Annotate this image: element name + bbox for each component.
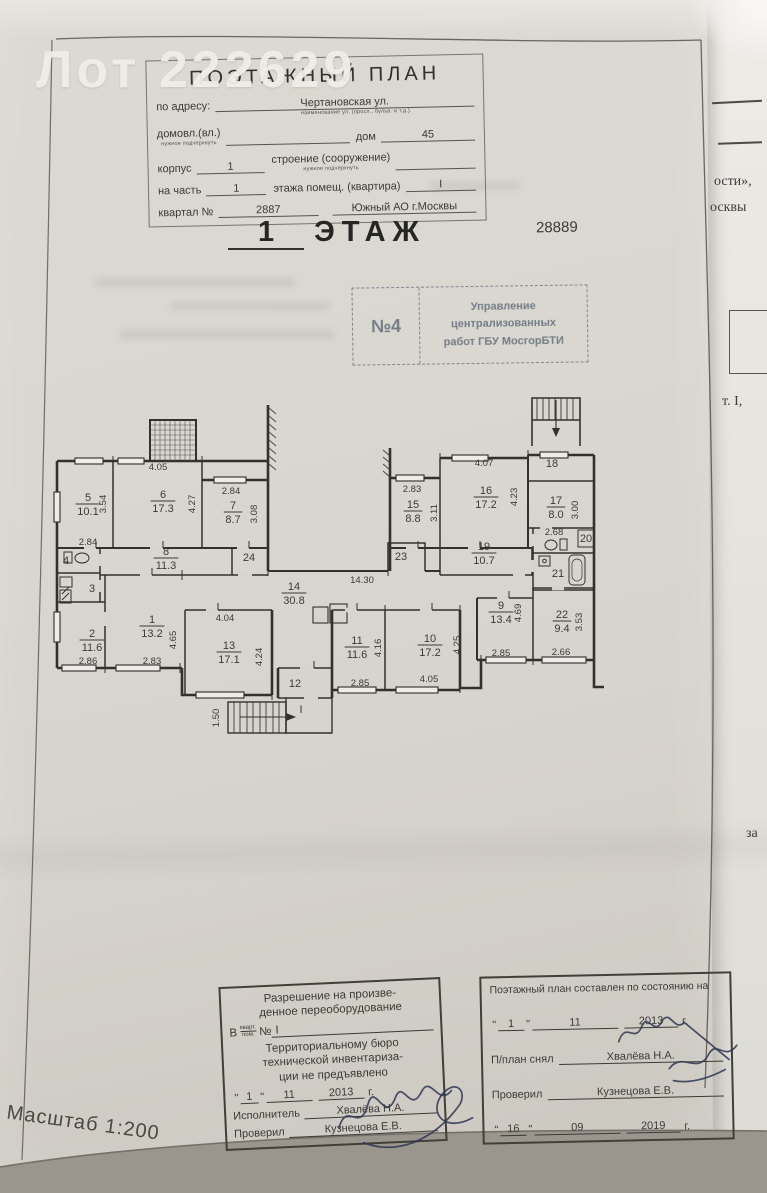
date-stamp-title: Поэтажный план составлен по состоянию на xyxy=(489,980,721,997)
date1-day: 1 xyxy=(498,1018,524,1032)
date2-day: 16 xyxy=(500,1123,526,1137)
bti-stamp-number: №4 xyxy=(352,288,420,365)
pom-label: пом. xyxy=(240,1032,256,1039)
floor-part-value: I xyxy=(405,178,476,192)
ownership-note: нужное подчеркнуть xyxy=(161,140,217,147)
ownership-row: домовл.(вл.) нужное подчеркнуть дом 45 xyxy=(157,122,475,148)
floor-title: 1ЭТАЖ xyxy=(228,216,426,249)
signature-flourish xyxy=(326,1060,480,1157)
floor-word: ЭТАЖ xyxy=(314,216,426,248)
korpus-value: 1 xyxy=(196,160,264,174)
part-value: 1 xyxy=(206,182,266,196)
num-label: № xyxy=(259,1026,272,1039)
checker-label: Проверил xyxy=(492,1088,543,1101)
house-value: 45 xyxy=(381,128,475,143)
perm-date-month: 11 xyxy=(266,1088,313,1103)
quote-mark: " xyxy=(526,1019,530,1031)
neighbor-text-fragment: т. I, xyxy=(722,394,742,410)
date1-month: 11 xyxy=(532,1016,618,1031)
quote-mark: " xyxy=(234,1092,238,1104)
quote-mark: " xyxy=(494,1124,498,1136)
address-label: по адресу: xyxy=(156,100,210,113)
neighbor-box-fragment xyxy=(729,310,767,374)
executor-label: Исполнитель xyxy=(233,1108,300,1123)
date2-year: 2019 xyxy=(626,1119,680,1133)
stroenie-blank xyxy=(395,156,475,171)
bti-stamp-line: Управление xyxy=(471,299,536,317)
lot-watermark: Лот 222629 xyxy=(36,40,356,100)
korpus-row: корпус 1 строение (сооружение) нужное по… xyxy=(157,150,475,176)
ownership-blank xyxy=(226,130,350,146)
kvartal-label: квартал № xyxy=(158,206,213,219)
quote-mark: " xyxy=(528,1124,532,1136)
ownership-label: домовл.(вл.) xyxy=(157,127,221,140)
permission-stamp: Разрешение на произве- денное переоборуд… xyxy=(218,977,447,1151)
floor-part-label: этажа помещ. (квартира) xyxy=(273,180,400,195)
date2-month: 09 xyxy=(534,1121,620,1136)
neighbor-text-fragment: ости», xyxy=(714,174,752,190)
part-row: на часть 1 этажа помещ. (квартира) I xyxy=(158,178,476,198)
perm-date-day: 1 xyxy=(240,1090,259,1104)
bti-stamp-line: работ ГБУ МосгорБТИ xyxy=(443,332,564,351)
date-row-2: " 16 " 09 2019 г. xyxy=(492,1119,724,1137)
quote-mark: " xyxy=(492,1019,496,1031)
bti-stamp: №4 Управление централизованных работ ГБУ… xyxy=(351,284,588,365)
korpus-label: корпус xyxy=(157,163,191,176)
quote-mark: " xyxy=(260,1091,264,1103)
stroenie-label: строение (сооружение) xyxy=(271,151,390,165)
permission-in-label: В xyxy=(229,1027,237,1039)
signature-flourish xyxy=(612,1009,744,1092)
neighbor-text-fragment: осквы xyxy=(710,200,746,216)
plan-date-stamp: Поэтажный план составлен по состоянию на… xyxy=(479,971,734,1144)
floor-number: 1 xyxy=(228,216,304,250)
house-label: дом xyxy=(356,131,376,143)
neighbor-text-fragment: за xyxy=(746,826,758,842)
part-label: на часть xyxy=(158,184,202,197)
stroenie-note: нужное подчеркнуть xyxy=(303,165,359,172)
year-suffix: г. xyxy=(684,1120,690,1132)
okrug-value: Южный АО г.Москвы xyxy=(332,200,476,216)
sheet-number: 28889 xyxy=(536,219,578,237)
perm-checker-label: Проверил xyxy=(234,1126,285,1140)
snapped-label: П/план снял xyxy=(491,1053,554,1066)
bti-stamp-line: централизованных xyxy=(451,315,556,334)
